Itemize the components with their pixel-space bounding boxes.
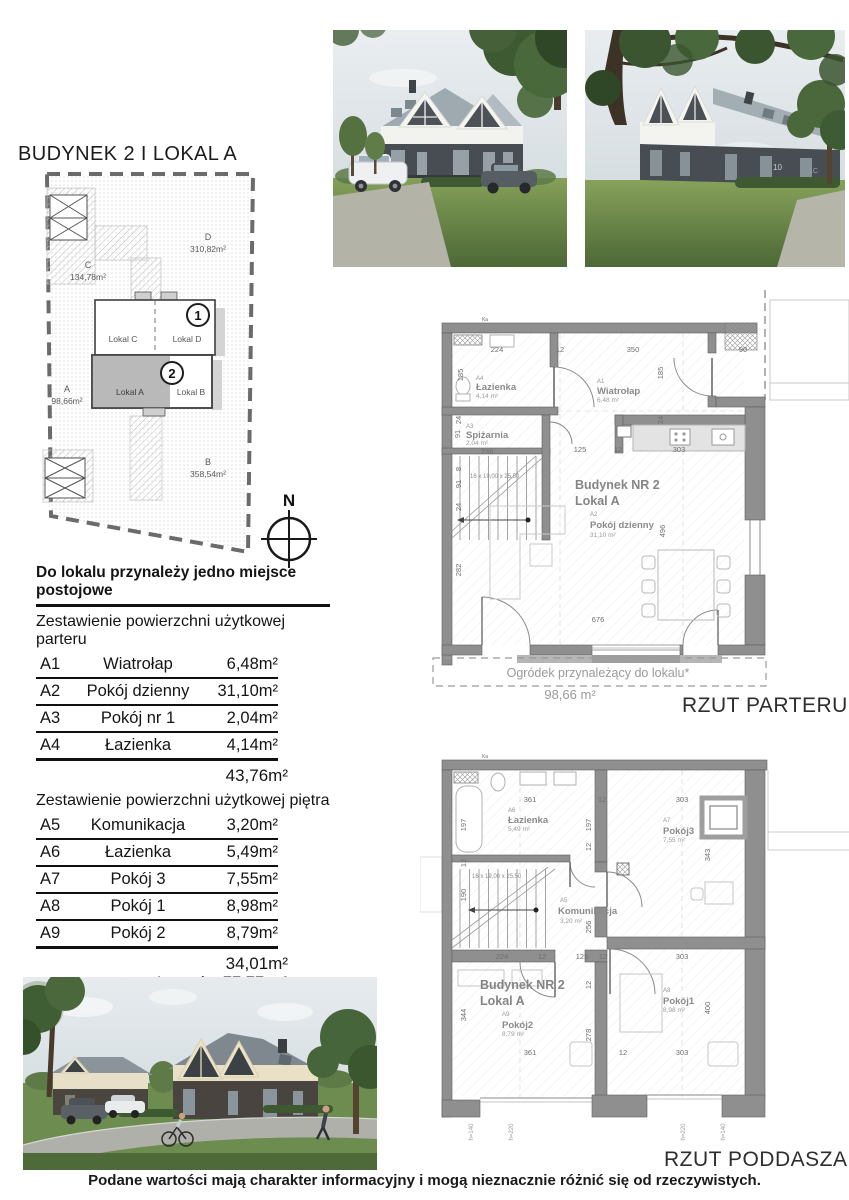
svg-text:303: 303: [673, 445, 686, 454]
svg-text:31,10 m²: 31,10 m²: [590, 532, 616, 539]
svg-text:Łazienka: Łazienka: [476, 382, 517, 393]
svg-text:A5: A5: [560, 898, 568, 904]
svg-text:12: 12: [614, 445, 622, 454]
svg-text:5,49 m²: 5,49 m²: [508, 826, 531, 833]
svg-text:134,78m²: 134,78m²: [70, 272, 106, 282]
svg-text:496: 496: [658, 525, 667, 538]
svg-text:197: 197: [584, 819, 593, 832]
table-row: A1 Wiatrołap 6,48m²: [36, 652, 278, 679]
svg-text:236: 236: [481, 447, 494, 456]
flyer-page: 10 1C BUDYNEK 2 I LOKAL A: [0, 0, 849, 1200]
sink-icon: [712, 429, 734, 445]
wall-number-2: 1C: [809, 168, 818, 175]
svg-text:12: 12: [538, 952, 546, 961]
svg-text:343: 343: [703, 849, 712, 862]
svg-text:A8: A8: [663, 988, 671, 994]
svg-text:350: 350: [627, 345, 640, 354]
svg-text:A1: A1: [597, 379, 605, 385]
svg-text:224: 224: [491, 345, 504, 354]
svg-text:3,20 m²: 3,20 m²: [560, 918, 583, 925]
svg-text:224: 224: [496, 952, 509, 961]
svg-text:303: 303: [676, 795, 689, 804]
garden-strip-label: Ogródek przynależący do lokalu*: [507, 666, 690, 680]
svg-text:197: 197: [459, 819, 468, 832]
shaft: [617, 863, 629, 875]
attic-plan-caption: RZUT PODDASZA: [664, 1148, 847, 1172]
wall-number-1: 10: [773, 163, 782, 172]
svg-text:12: 12: [619, 1048, 627, 1057]
svg-text:Budynek NR 2: Budynek NR 2: [480, 978, 565, 992]
svg-text:Wiatrołap: Wiatrołap: [597, 386, 640, 397]
ground-table-header: Zestawienie powierzchni użytkowej parter…: [36, 613, 336, 649]
highlighted-unit-a: [92, 355, 170, 408]
table-row: A5 Komunikacja 3,20m²: [36, 813, 278, 840]
svg-text:310,82m²: 310,82m²: [190, 244, 226, 254]
render-photo-front: [333, 30, 567, 267]
neighbor-outline: [768, 770, 849, 850]
svg-text:A7: A7: [663, 818, 671, 824]
svg-text:98,66m²: 98,66m²: [51, 396, 82, 406]
svg-text:A2: A2: [590, 512, 598, 518]
unit-label-c: Lokal C: [109, 334, 138, 344]
render-photo-corner: 10 1C: [585, 30, 845, 267]
svg-text:24: 24: [454, 503, 463, 511]
svg-text:6,48 m²: 6,48 m²: [597, 397, 620, 404]
neighbor-outline: [420, 857, 442, 912]
svg-text:B: B: [205, 457, 211, 467]
svg-text:12: 12: [598, 795, 606, 804]
svg-text:185: 185: [656, 367, 665, 380]
svg-text:24: 24: [454, 416, 463, 424]
svg-text:190: 190: [459, 889, 468, 902]
disclaimer-text: Podane wartości mają charakter informacy…: [0, 1172, 849, 1189]
unit-label-b: Lokal B: [177, 387, 206, 397]
stove-icon: [670, 429, 690, 445]
hedge: [421, 177, 485, 187]
sink-icon: [554, 772, 576, 785]
svg-text:278: 278: [584, 1029, 593, 1042]
kitchen: [633, 425, 745, 451]
svg-text:Pokój2: Pokój2: [502, 1020, 533, 1031]
table-row: A2 Pokój dzienny 31,10m²: [36, 679, 278, 706]
upper-table-header: Zestawienie powierzchni użytkowej piętra: [36, 792, 336, 810]
svg-text:676: 676: [592, 615, 605, 624]
parking-note: Do lokalu przynależy jedno miejsce posto…: [36, 564, 330, 607]
sill-heights: h=140 h=220 h=220 h=140: [469, 1123, 727, 1141]
svg-text:Pokój3: Pokój3: [663, 826, 694, 837]
svg-text:8,79 m²: 8,79 m²: [502, 1031, 525, 1038]
svg-text:12: 12: [584, 981, 593, 989]
neighbor-outline: [770, 300, 849, 400]
roof-window: [391, 108, 402, 117]
table-row: A8 Pokój 1 8,98m²: [36, 894, 278, 921]
svg-text:303: 303: [676, 1048, 689, 1057]
site-plan: Lokal C Lokal D 1 Lokal A Lokal B 2 D 31…: [35, 168, 265, 560]
window-sill: [592, 655, 682, 663]
svg-text:8: 8: [454, 467, 463, 471]
compass-icon: N: [258, 490, 320, 570]
svg-text:1: 1: [194, 308, 201, 323]
page-title: BUDYNEK 2 I LOKAL A: [18, 143, 237, 166]
render-photo-street: [23, 977, 377, 1170]
svg-text:125: 125: [576, 952, 589, 961]
hedge: [735, 177, 840, 188]
svg-text:7,55 m²: 7,55 m²: [663, 837, 686, 844]
svg-text:2,04 m²: 2,04 m²: [466, 440, 489, 447]
sink-icon: [520, 772, 546, 785]
svg-text:D: D: [205, 232, 212, 242]
svg-text:185: 185: [456, 369, 465, 382]
svg-text:Pokój dzienny: Pokój dzienny: [590, 520, 655, 531]
shaft: [617, 426, 631, 437]
svg-text:12: 12: [459, 859, 468, 867]
svg-text:12: 12: [556, 345, 564, 354]
svg-text:h=220: h=220: [681, 1123, 687, 1141]
table-row: A3 Pokój nr 1 2,04m²: [36, 706, 278, 733]
svg-text:303: 303: [676, 952, 689, 961]
svg-text:2: 2: [168, 366, 175, 381]
svg-text:h=220: h=220: [509, 1123, 515, 1141]
svg-text:Budynek NR 2: Budynek NR 2: [575, 478, 660, 492]
chimney-box: [702, 798, 745, 837]
washer-icon: [454, 335, 482, 345]
table-row: A9 Pokój 2 8,79m²: [36, 921, 278, 949]
svg-text:256: 256: [584, 921, 593, 934]
svg-text:282: 282: [454, 564, 463, 577]
stairs-note: 16 x 19,00 x 25,50: [472, 874, 522, 880]
svg-text:8,98 m²: 8,98 m²: [663, 1007, 686, 1014]
table-row: A7 Pokój 3 7,55m²: [36, 867, 278, 894]
ground-table: A1 Wiatrołap 6,48m² A2 Pokój dzienny 31,…: [36, 652, 278, 761]
chimney: [409, 80, 416, 93]
svg-text:125: 125: [574, 445, 587, 454]
washer-icon: [454, 772, 478, 783]
svg-text:Lokal A: Lokal A: [575, 494, 620, 508]
svg-text:Pokój1: Pokój1: [663, 996, 695, 1007]
table-row: A6 Łazienka 5,49m²: [36, 840, 278, 867]
svg-text:C: C: [85, 260, 92, 270]
building-1: Lokal C Lokal D 1: [95, 292, 215, 355]
window-sill: [680, 655, 722, 663]
stairs-note: 16 x 19,00 x 25,50: [470, 474, 520, 480]
building-2: Lokal A Lokal B 2: [92, 355, 212, 416]
svg-text:12: 12: [599, 952, 607, 961]
garden-strip-area: 98,66 m²: [544, 687, 596, 702]
svg-text:Ka: Ka: [482, 754, 488, 760]
svg-text:h=140: h=140: [721, 1123, 727, 1141]
table-row: A4 Łazienka 4,14m²: [36, 733, 278, 761]
svg-text:361: 361: [524, 1048, 537, 1057]
ground-plan-caption: RZUT PARTERU: [682, 694, 848, 718]
upper-subtotal: 34,01m²: [36, 954, 288, 974]
svg-text:91: 91: [453, 430, 462, 438]
upper-table: A5 Komunikacja 3,20m² A6 Łazienka 5,49m²…: [36, 813, 278, 949]
unit-label-d: Lokal D: [173, 334, 202, 344]
svg-text:12: 12: [584, 843, 593, 851]
svg-text:Lokal A: Lokal A: [480, 994, 525, 1008]
foreground-grass: [23, 1153, 377, 1170]
svg-text:400: 400: [703, 1002, 712, 1015]
attic-floor-plan: 16 x 19,00 x 25,50 361 12 303 197: [420, 742, 849, 1152]
svg-text:358,54m²: 358,54m²: [190, 469, 226, 479]
compass-north-label: N: [283, 491, 295, 510]
svg-text:Komunikacja: Komunikacja: [558, 906, 618, 917]
svg-text:24: 24: [656, 416, 665, 424]
svg-text:h=140: h=140: [469, 1123, 475, 1141]
svg-text:A9: A9: [502, 1012, 510, 1018]
svg-text:90: 90: [739, 345, 747, 354]
svg-text:A: A: [64, 384, 70, 394]
ground-floor-plan: 16 x 19,00 x 25,50: [430, 288, 849, 703]
svg-text:344: 344: [459, 1009, 468, 1022]
svg-text:A6: A6: [508, 808, 516, 814]
svg-text:4,14 m²: 4,14 m²: [476, 393, 499, 400]
svg-text:Ka: Ka: [482, 317, 488, 323]
svg-text:361: 361: [524, 795, 537, 804]
unit-label-a: Lokal A: [116, 387, 144, 397]
chimney: [278, 1039, 287, 1053]
toilet-icon: [491, 773, 505, 791]
window-sill: [517, 655, 595, 663]
svg-text:91: 91: [454, 480, 463, 488]
window: [592, 645, 680, 650]
ground-subtotal: 43,76m²: [36, 766, 288, 786]
area-summary: Do lokalu przynależy jedno miejsce posto…: [36, 564, 336, 1035]
svg-text:Łazienka: Łazienka: [508, 815, 549, 826]
